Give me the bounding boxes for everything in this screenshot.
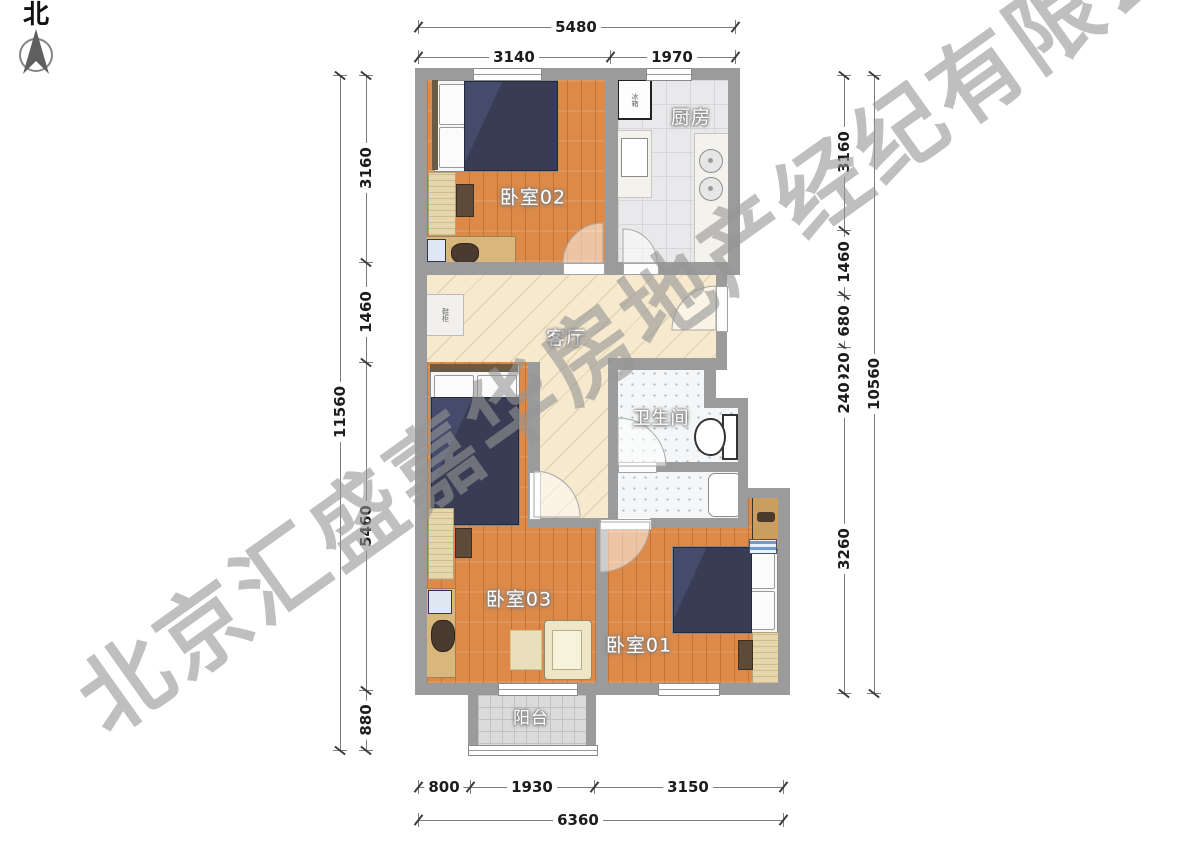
dim-tick — [837, 75, 851, 76]
room-label-bedroom02: 卧室02 — [500, 183, 566, 210]
bed-bedroom02-headboard — [432, 80, 438, 170]
dim-right-seg5: 240 — [835, 378, 853, 417]
computer-icon — [427, 239, 446, 262]
dim-tick — [735, 20, 736, 34]
dim-tick — [359, 362, 373, 363]
armchair-seat — [552, 630, 582, 670]
dim-tick — [418, 813, 419, 827]
entry-cabinet-icon: 鞋柜 — [426, 294, 464, 336]
dim-top-seg2: 1970 — [647, 48, 697, 66]
dim-tick — [837, 693, 851, 694]
room-label-living: 客厅 — [546, 324, 586, 351]
wall — [468, 693, 478, 749]
fridge-icon: 冰箱 — [617, 79, 652, 120]
balcony-door-sill — [498, 683, 578, 696]
dim-tick — [359, 262, 373, 263]
nightstand — [738, 640, 753, 670]
computer-icon — [428, 590, 452, 614]
dim-tick — [867, 75, 881, 76]
wall — [650, 518, 748, 528]
bed-bedroom03-blanket — [431, 397, 519, 525]
window-kitchen — [646, 68, 692, 81]
nightstand — [455, 528, 472, 558]
dim-right-seg3: 680 — [835, 301, 853, 340]
room-label-bedroom01: 卧室01 — [606, 631, 672, 658]
dim-tick — [359, 75, 373, 76]
bed-bedroom03-headboard — [430, 364, 518, 372]
room-label-kitchen: 厨房 — [671, 103, 711, 130]
floor-living-column — [540, 362, 608, 518]
door-leaf-bedroom01 — [600, 519, 652, 530]
floorplan-canvas: 北 冰箱 鞋柜 — [0, 0, 1200, 850]
dim-line — [418, 787, 783, 788]
dim-tick — [333, 75, 347, 76]
pillow — [439, 84, 465, 125]
bedside-mat — [428, 172, 456, 236]
door-leaf-bedroom02 — [563, 263, 605, 275]
door-leaf-entry — [716, 286, 728, 332]
chair — [451, 243, 479, 264]
dim-left-total: 11560 — [331, 382, 349, 442]
window-bedroom02 — [473, 68, 542, 81]
fridge-label: 冰箱 — [619, 81, 650, 118]
dim-tick — [783, 780, 784, 794]
dim-tick — [610, 50, 611, 64]
dim-tick — [418, 50, 419, 64]
dim-tick — [418, 20, 419, 34]
balcony-railing — [468, 745, 598, 756]
stove-burner-icon — [699, 177, 723, 201]
bed-bedroom01-blanket — [673, 547, 752, 633]
dim-left-seg4: 880 — [357, 700, 375, 739]
wall — [738, 398, 748, 528]
dim-left-seg1: 3160 — [357, 143, 375, 193]
entry-cabinet-label: 鞋柜 — [427, 295, 463, 335]
pillow — [750, 550, 775, 589]
wardrobe-item — [757, 512, 775, 522]
dim-right-seg2: 1460 — [835, 237, 853, 287]
pillow — [750, 591, 775, 630]
dim-tick — [735, 50, 736, 64]
dim-right-seg6: 3260 — [835, 524, 853, 574]
dim-bottom-seg2: 1930 — [507, 778, 557, 796]
washbasin-icon — [708, 473, 742, 517]
toilet-icon — [694, 418, 726, 456]
dim-tick — [359, 690, 373, 691]
wall — [728, 68, 740, 275]
rug — [510, 630, 542, 670]
wall — [778, 488, 790, 695]
wall — [608, 358, 716, 370]
room-label-bathroom: 卫生间 — [633, 404, 690, 430]
dim-tick — [783, 813, 784, 827]
north-label: 北 — [8, 2, 64, 28]
dim-tick — [837, 295, 851, 296]
wall — [608, 362, 618, 522]
nightstand — [456, 184, 474, 217]
dim-right-total: 10560 — [865, 354, 883, 414]
window-bedroom01 — [658, 683, 720, 696]
door-leaf-bathroom — [618, 462, 657, 473]
bed-bedroom02-blanket — [464, 81, 558, 171]
dim-top-total: 5480 — [551, 18, 601, 36]
compass-icon — [12, 28, 60, 78]
dim-left-seg2: 1460 — [357, 287, 375, 337]
dim-tick — [867, 693, 881, 694]
dim-left-seg3: 5460 — [357, 501, 375, 551]
door-leaf-kitchen — [623, 263, 659, 275]
chair — [431, 620, 455, 652]
room-label-bedroom03: 卧室03 — [486, 585, 552, 612]
dim-top-seg1: 3140 — [489, 48, 539, 66]
dim-tick — [418, 780, 419, 794]
dim-tick — [470, 780, 471, 794]
dim-tick — [333, 750, 347, 751]
dim-bottom-seg3: 3150 — [663, 778, 713, 796]
dim-tick — [837, 230, 851, 231]
dim-tick — [594, 780, 595, 794]
wall — [415, 68, 427, 695]
dim-bottom-total: 6360 — [553, 811, 603, 829]
kitchen-sink-icon — [621, 138, 648, 177]
dim-right-seg1: 3160 — [835, 127, 853, 177]
bedside-mat — [428, 508, 454, 580]
wall — [596, 528, 608, 683]
north-indicator: 北 — [8, 2, 64, 72]
wall — [586, 693, 596, 749]
wall — [655, 462, 738, 472]
dim-bottom-seg1: 800 — [424, 778, 463, 796]
dim-tick — [359, 750, 373, 751]
pillow — [439, 127, 465, 168]
door-leaf-bedroom03 — [529, 472, 541, 520]
storage-box — [749, 539, 777, 554]
wall — [605, 68, 618, 275]
room-label-balcony: 阳台 — [513, 704, 549, 729]
stove-burner-icon — [699, 149, 723, 173]
